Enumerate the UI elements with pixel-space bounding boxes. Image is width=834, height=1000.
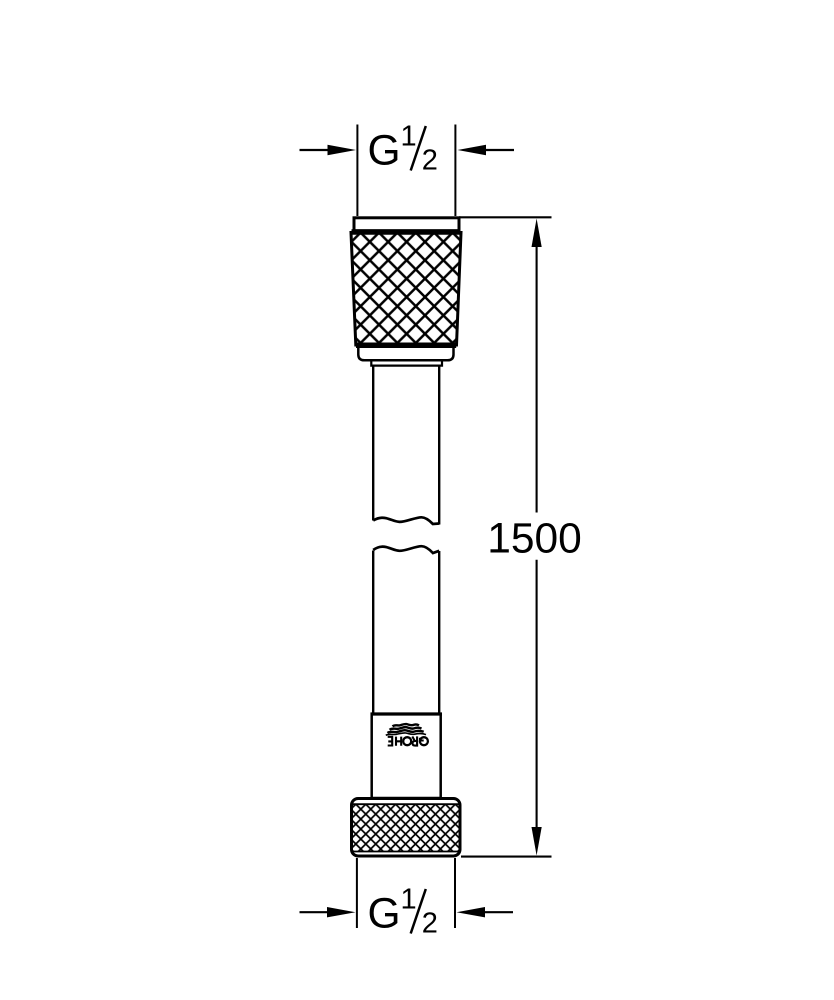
svg-text:2: 2 (422, 908, 438, 940)
svg-text:G: G (368, 891, 401, 938)
svg-text:G: G (368, 128, 401, 175)
svg-text:1: 1 (401, 884, 417, 916)
svg-text:1: 1 (401, 121, 417, 153)
svg-text:2: 2 (422, 145, 438, 177)
svg-text:1500: 1500 (487, 515, 582, 562)
